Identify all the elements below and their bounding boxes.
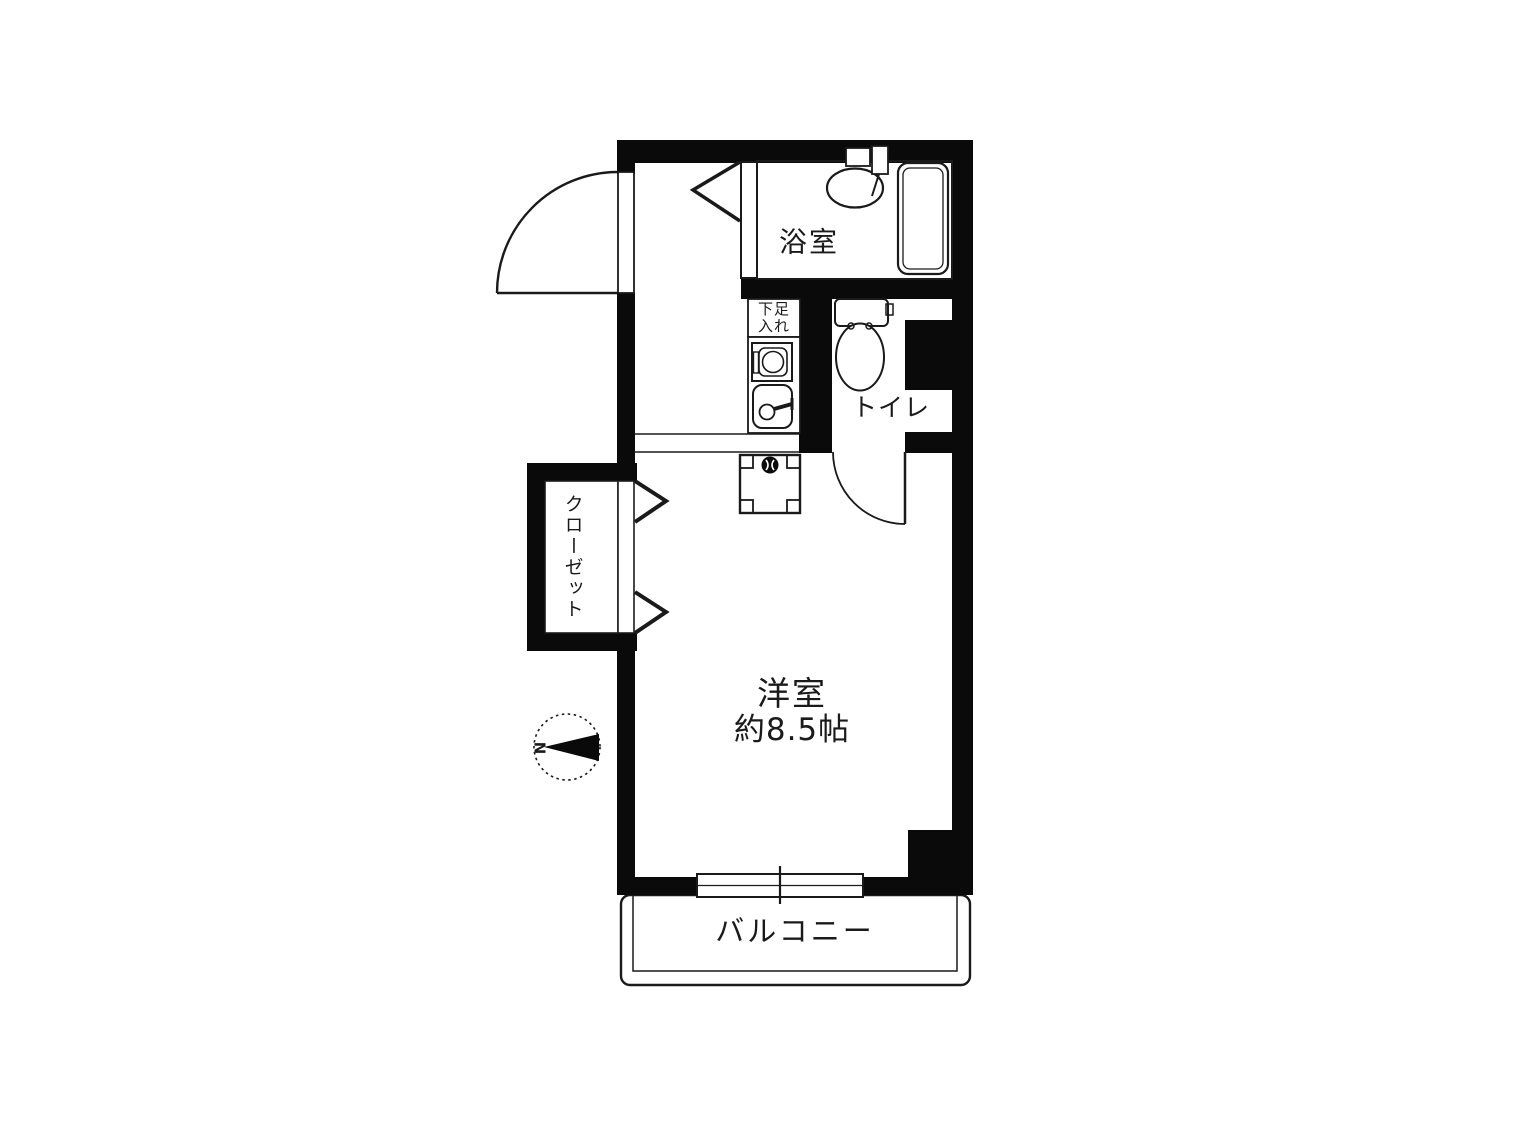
entrance-door [497, 172, 634, 293]
wall-left-upper [617, 140, 635, 174]
balcony-window [697, 866, 863, 904]
compass-north-label: N [533, 742, 550, 755]
room-door [833, 452, 905, 524]
entrance-door-arc [497, 172, 617, 293]
bathtub-icon [898, 163, 948, 274]
wall-toilet-bottom [905, 432, 953, 453]
wall-left-lower [617, 650, 635, 895]
closet-door-chevron-bottom [635, 592, 666, 633]
balcony-label: バルコニー [715, 915, 874, 947]
closet-label: クローゼット [561, 494, 582, 620]
closet-door-panel [618, 481, 634, 633]
wall-top [617, 140, 973, 163]
floor-plan-drawing [0, 0, 1531, 1126]
toilet-icon [835, 299, 893, 391]
wall-bathroom-bottom [741, 278, 973, 299]
wall-corner-column [908, 830, 973, 895]
shoe-cabinet-label: 下足 入れ [758, 301, 790, 336]
main-room-label: 洋室 約8.5帖 [734, 676, 850, 748]
wall-right [952, 140, 973, 895]
kitchen-sink-icon [753, 385, 792, 428]
shoe-cabinet-label-line2: 入れ [758, 318, 790, 335]
closet-door-chevron-top [635, 481, 666, 522]
bathroom-label: 浴室 [779, 226, 839, 257]
toilet-tank [835, 299, 888, 326]
wall-kitchen-toilet [799, 293, 832, 453]
wall-closet-bottom [527, 633, 637, 651]
bathtub-rim [898, 163, 948, 274]
wall-closet-left [527, 463, 545, 651]
toilet-label: トイレ [852, 394, 930, 422]
main-room-size: 約8.5帖 [734, 713, 850, 748]
wall-bottom-left [617, 877, 697, 895]
wall-left-mid [617, 292, 635, 482]
drain-icon [762, 457, 779, 474]
shoe-cabinet-label-line1: 下足 [758, 301, 790, 318]
floor-plan-canvas: 浴室 下足 入れ トイレ クローゼット 洋室 約8.5帖 バルコニー N [0, 0, 1531, 1126]
kitchen-stove-icon [752, 343, 792, 381]
bathroom [693, 146, 952, 279]
pipe-space-block [905, 320, 953, 390]
washing-machine-pan-icon [740, 455, 800, 513]
hallway-boundary [634, 434, 799, 452]
bathroom-partition-wall [741, 162, 757, 278]
bathroom-folding-door [693, 162, 740, 221]
entrance-door-leaf [618, 172, 634, 293]
main-room-name: 洋室 [734, 676, 850, 713]
toilet-bowl [836, 324, 884, 391]
room-door-arc [833, 452, 905, 524]
